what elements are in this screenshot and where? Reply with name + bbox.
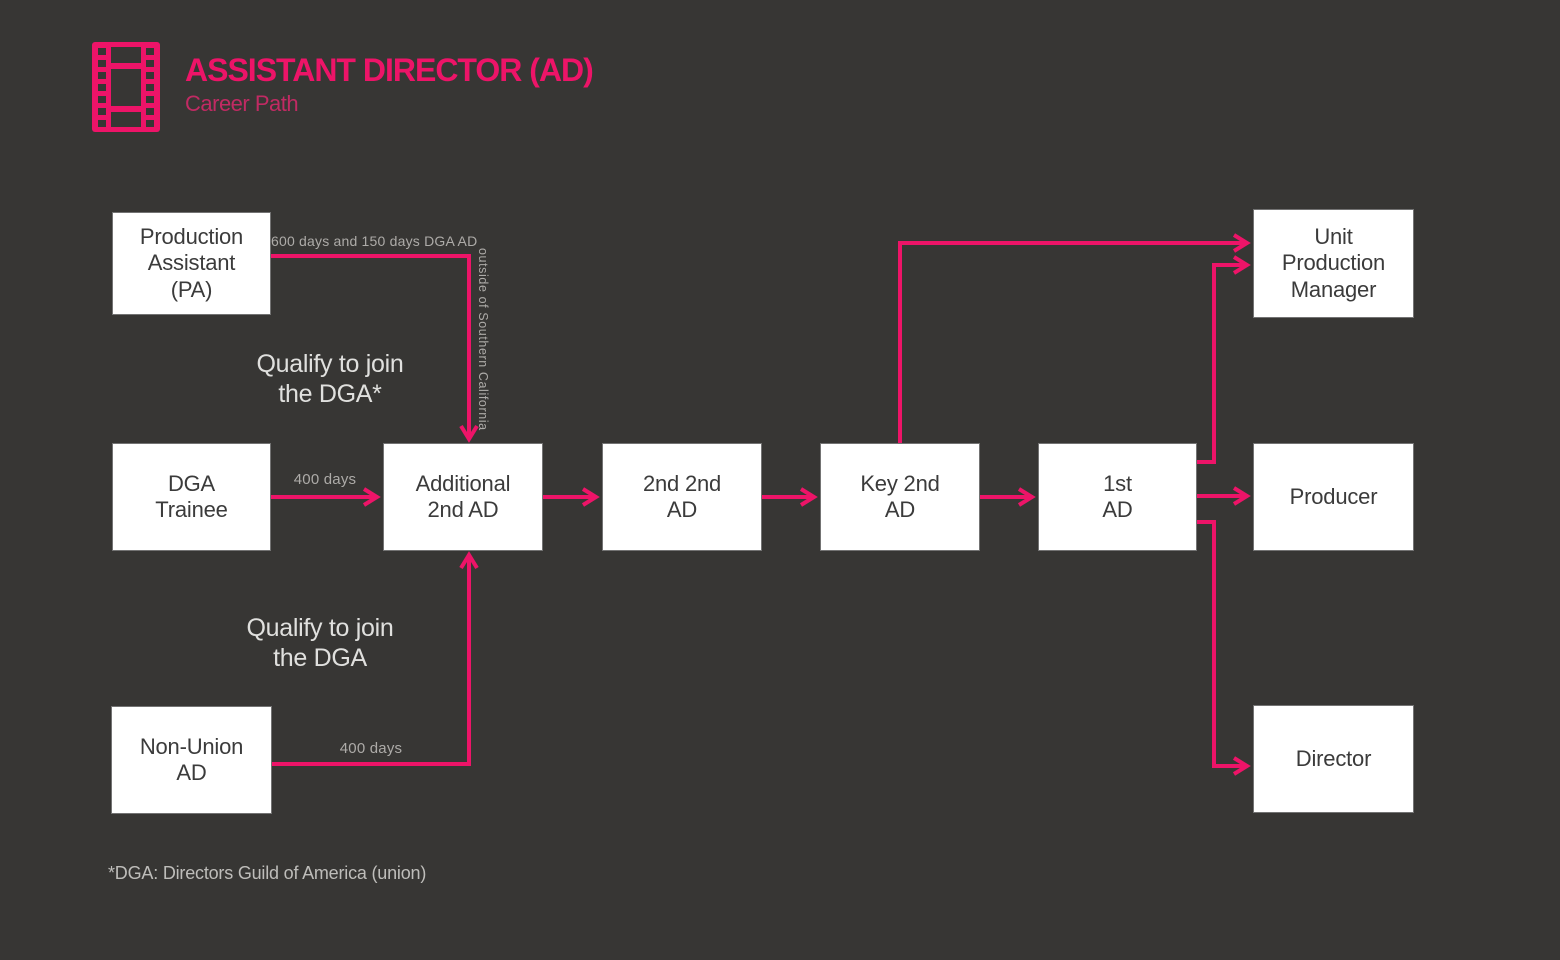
edge-pa-to-additional-2nd-ad <box>271 256 469 439</box>
node-additional-2nd-ad: Additional 2nd AD <box>383 443 543 551</box>
edge-1st-ad-to-director <box>1197 522 1247 766</box>
career-path-diagram: ASSISTANT DIRECTOR (AD) Career Path Prod… <box>0 0 1560 960</box>
node-1st-ad: 1st AD <box>1038 443 1197 551</box>
label-600-days: 600 days and 150 days DGA AD <box>271 233 470 249</box>
label-400-days-trainee: 400 days <box>271 471 379 488</box>
node-director: Director <box>1253 705 1414 813</box>
node-non-union-ad: Non-Union AD <box>111 706 272 814</box>
annotation-qualify-dga: Qualify to join the DGA <box>220 613 420 673</box>
node-producer: Producer <box>1253 443 1414 551</box>
node-2nd-2nd-ad: 2nd 2nd AD <box>602 443 762 551</box>
node-key-2nd-ad: Key 2nd AD <box>820 443 980 551</box>
edge-1st-ad-to-upm <box>1197 265 1247 462</box>
footnote-dga-definition: *DGA: Directors Guild of America (union) <box>108 863 426 884</box>
label-outside-southern-california: outside of Southern California <box>476 248 490 431</box>
node-production-assistant: Production Assistant (PA) <box>112 212 271 315</box>
annotation-qualify-dga-star: Qualify to join the DGA* <box>230 349 430 409</box>
node-dga-trainee: DGA Trainee <box>112 443 271 551</box>
edge-key-2nd-to-upm <box>900 243 1247 443</box>
node-unit-production-manager: Unit Production Manager <box>1253 209 1414 318</box>
label-400-days-non-union: 400 days <box>272 740 470 757</box>
